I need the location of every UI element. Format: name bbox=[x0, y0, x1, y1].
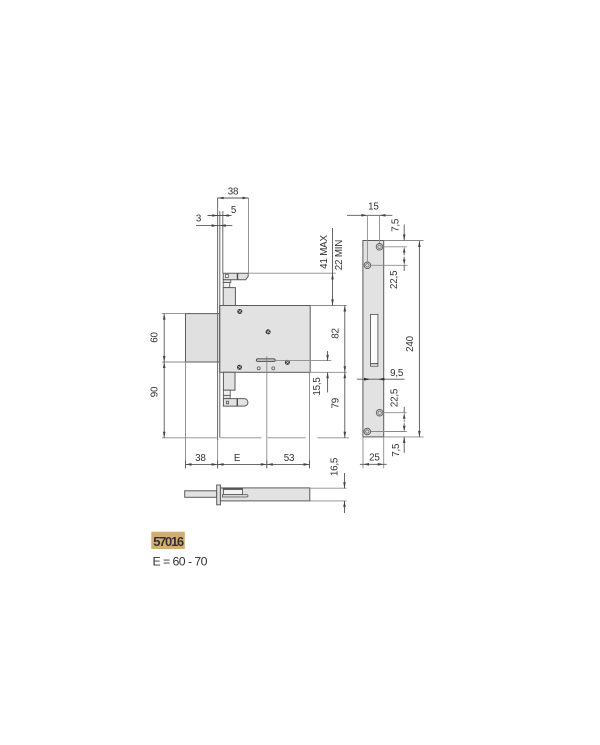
svg-text:16,5: 16,5 bbox=[330, 457, 341, 476]
svg-text:9,5: 9,5 bbox=[390, 368, 404, 379]
svg-text:15: 15 bbox=[368, 202, 379, 213]
svg-text:240: 240 bbox=[405, 335, 416, 351]
svg-text:E: E bbox=[234, 453, 241, 464]
svg-text:38: 38 bbox=[195, 453, 206, 464]
svg-text:79: 79 bbox=[330, 398, 341, 409]
svg-text:25: 25 bbox=[369, 453, 380, 464]
svg-text:22,5: 22,5 bbox=[389, 270, 400, 289]
svg-text:7,5: 7,5 bbox=[391, 218, 402, 232]
svg-text:82: 82 bbox=[330, 328, 341, 339]
svg-text:90: 90 bbox=[150, 386, 161, 397]
svg-text:38: 38 bbox=[228, 187, 239, 198]
svg-text:60: 60 bbox=[150, 332, 161, 343]
svg-text:22,5: 22,5 bbox=[389, 388, 400, 407]
svg-text:41 MAX: 41 MAX bbox=[319, 235, 330, 269]
svg-text:15,5: 15,5 bbox=[312, 377, 323, 396]
svg-text:57016: 57016 bbox=[153, 534, 184, 549]
svg-text:5: 5 bbox=[231, 205, 237, 216]
svg-text:53: 53 bbox=[284, 453, 295, 464]
svg-text:22 MIN: 22 MIN bbox=[334, 240, 345, 271]
svg-text:7,5: 7,5 bbox=[391, 443, 402, 457]
svg-text:E = 60 - 70: E = 60 - 70 bbox=[153, 555, 208, 569]
svg-text:3: 3 bbox=[196, 214, 202, 225]
